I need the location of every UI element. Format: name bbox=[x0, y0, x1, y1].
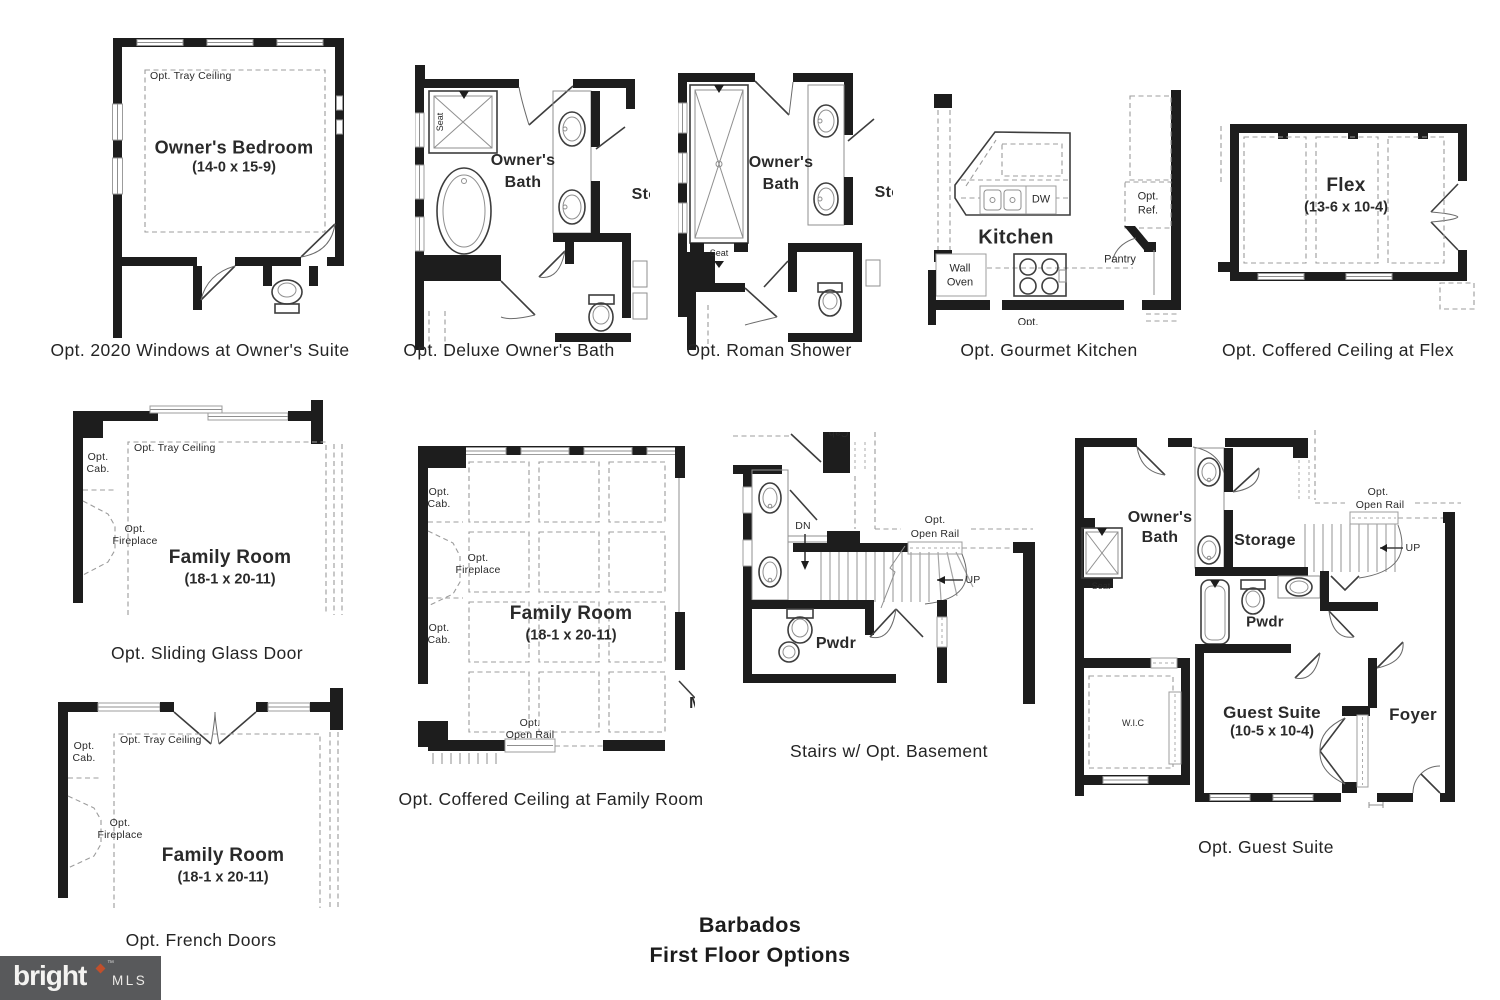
plan-french-doors: Opt. Tray Ceiling Opt. Cab. Opt. Firepla… bbox=[58, 686, 348, 908]
tray-ceiling-label: Opt. Tray Ceiling bbox=[120, 734, 202, 746]
room-dimensions-label: (18-1 x 20-11) bbox=[184, 572, 275, 589]
mls-logo-text: MLS bbox=[112, 973, 147, 988]
plan-caption: Opt. Sliding Glass Door bbox=[111, 643, 303, 664]
plan-sliding-glass-door: Opt. Tray Ceiling Opt. Cab. Opt. Firepla… bbox=[58, 398, 348, 615]
opt-ref-label: Opt. bbox=[1138, 191, 1159, 204]
opt-fireplace-label: Opt. Fireplace bbox=[103, 523, 167, 547]
plan-owners-suite-windows: Opt. Tray Ceiling Owner's Bedroom (14-0 … bbox=[95, 38, 360, 338]
room-name-label: Flex bbox=[1326, 175, 1365, 197]
open-rail-label: Opt. bbox=[1368, 486, 1389, 498]
room-name-label: Kitchen bbox=[978, 227, 1053, 250]
bright-logo-wordmark: bright bbox=[13, 960, 86, 992]
opt-cab-label: Opt. Cab. bbox=[418, 486, 460, 510]
opt-cab-label: Opt. Cab. bbox=[418, 622, 460, 646]
wall-oven-label: Oven bbox=[947, 277, 973, 290]
storage-label-clipped: Sto bbox=[875, 184, 893, 202]
plan-caption: Opt. Gourmet Kitchen bbox=[960, 340, 1137, 361]
room-dimensions-label: (18-1 x 20-11) bbox=[177, 870, 268, 887]
floor-plan-sheet: Opt. Tray Ceiling Owner's Bedroom (14-0 … bbox=[0, 0, 1500, 1000]
room-name-label: Bath bbox=[1142, 529, 1179, 547]
plan-deluxe-owners-bath: Seat Owner's Bath Sto bbox=[415, 65, 650, 350]
plan-caption: Opt. Coffered Ceiling at Flex bbox=[1222, 340, 1454, 361]
room-name-label: Owner's Bedroom bbox=[155, 138, 314, 159]
pwdr-label: Pwdr bbox=[1246, 613, 1284, 630]
seat-label: Seat bbox=[435, 113, 445, 132]
up-label: UP bbox=[1406, 542, 1421, 554]
opt-cab-label: Opt. Cab. bbox=[77, 451, 119, 475]
floorplan-drawing bbox=[95, 38, 360, 338]
plan-caption: Stairs w/ Opt. Basement bbox=[790, 741, 988, 762]
bright-logo-diamond-icon bbox=[96, 964, 106, 974]
plan-caption: Opt. 2020 Windows at Owner's Suite bbox=[50, 340, 349, 361]
floorplan-drawing bbox=[678, 65, 893, 350]
open-rail-label: Opt. bbox=[520, 717, 541, 729]
room-dimensions-label: (18-1 x 20-11) bbox=[525, 628, 616, 645]
storage-label: Storage bbox=[1234, 532, 1296, 550]
pantry-label: Pantry bbox=[1104, 254, 1136, 267]
room-name-label: Bath bbox=[505, 174, 542, 192]
room-name-label: Guest Suite bbox=[1223, 703, 1321, 723]
dn-label: DN bbox=[795, 520, 811, 532]
opt-ref-label: Ref. bbox=[1138, 205, 1158, 218]
plan-caption: Opt. French Doors bbox=[126, 930, 277, 951]
opt-cab-label: Opt. Cab. bbox=[63, 740, 105, 764]
tray-ceiling-label: Opt. Tray Ceiling bbox=[150, 70, 232, 82]
floorplan-drawing bbox=[733, 432, 1035, 704]
sheet-subtitle: First Floor Options bbox=[649, 943, 850, 968]
room-name-label: Bath bbox=[763, 176, 800, 194]
dishwasher-label: DW bbox=[1032, 194, 1050, 207]
open-rail-label: Opt. bbox=[925, 514, 946, 526]
plan-caption: Opt. Deluxe Owner's Bath bbox=[403, 340, 614, 361]
trademark-symbol: ™ bbox=[107, 960, 114, 967]
floorplan-drawing bbox=[415, 65, 650, 350]
room-dimensions-label: (14-0 x 15-9) bbox=[192, 160, 276, 177]
plan-coffered-family-room: Opt. Cab. Opt. Fireplace Opt. Cab. Famil… bbox=[403, 436, 695, 768]
plan-caption: Opt. Roman Shower bbox=[686, 340, 851, 361]
cab-label-clipped: Cab. bbox=[826, 432, 849, 439]
open-rail-label: Open Rail bbox=[911, 528, 960, 540]
plan-roman-shower: Seat Owner's Bath Sto bbox=[678, 65, 893, 350]
wic-label: W.I.C bbox=[1122, 718, 1144, 728]
opt-label-clipped: Opt. bbox=[1018, 317, 1039, 325]
floorplan-drawing bbox=[1218, 124, 1476, 314]
pwdr-label: Pwdr bbox=[816, 635, 856, 653]
room-name-label: Family Room bbox=[162, 845, 285, 867]
tray-ceiling-label: Opt. Tray Ceiling bbox=[134, 442, 216, 454]
up-label: UP bbox=[966, 574, 981, 586]
plan-caption: Opt. Guest Suite bbox=[1198, 837, 1334, 858]
plan-coffered-flex: Flex (13-6 x 10-4) bbox=[1218, 124, 1476, 314]
open-rail-label: Open Rail bbox=[506, 729, 555, 741]
seat-label: Seat bbox=[710, 248, 729, 258]
storage-label-clipped: Sto bbox=[632, 186, 650, 204]
foyer-label: Foyer bbox=[1389, 705, 1437, 725]
wall-oven-label: Wall bbox=[950, 263, 971, 276]
room-name-label: Owner's bbox=[749, 154, 814, 172]
plan-caption: Opt. Coffered Ceiling at Family Room bbox=[399, 789, 704, 810]
room-name-label: Owner's bbox=[1128, 509, 1193, 527]
opt-fireplace-label: Opt. Fireplace bbox=[88, 817, 152, 841]
room-dimensions-label: (10-5 x 10-4) bbox=[1230, 724, 1314, 741]
room-name-label: Family Room bbox=[169, 547, 292, 569]
room-dimensions-label: (13-6 x 10-4) bbox=[1304, 200, 1388, 217]
plan-stairs-opt-basement: Cab. DN Opt. Open Rail UP Pwdr bbox=[733, 432, 1035, 704]
room-name-label: Family Room bbox=[510, 603, 633, 625]
room-name-label: Owner's bbox=[491, 152, 556, 170]
opt-fireplace-label: Opt. Fireplace bbox=[446, 552, 510, 576]
open-rail-label: Open Rail bbox=[1356, 499, 1405, 511]
clipped-letter: M bbox=[689, 695, 695, 713]
sheet-title: Barbados bbox=[699, 913, 801, 938]
seat-label: Seat bbox=[1092, 581, 1111, 591]
plan-gourmet-kitchen: Opt. Ref. DW Kitchen Pantry Wall Oven Op… bbox=[928, 90, 1183, 325]
plan-guest-suite: Owner's Bath Seat Storage Opt. Open Rail… bbox=[1073, 430, 1465, 808]
bright-mls-logo: bright ™ MLS bbox=[0, 956, 161, 1000]
